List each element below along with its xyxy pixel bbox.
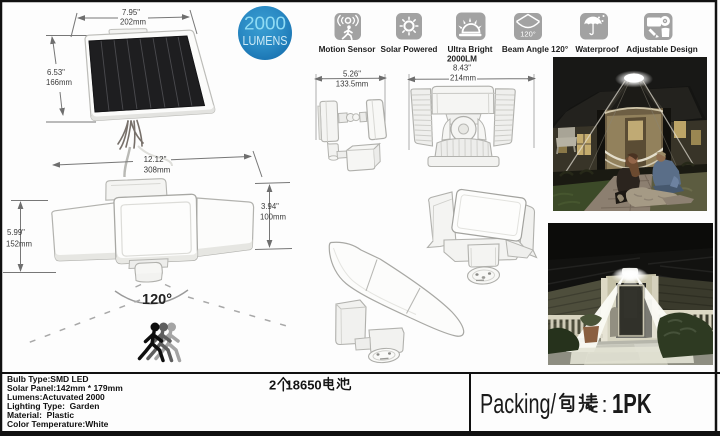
svg-text:152mm: 152mm <box>6 240 32 249</box>
svg-text:18650: 18650 <box>286 378 322 393</box>
svg-text:2000: 2000 <box>244 13 286 34</box>
svg-text:3.94": 3.94" <box>261 202 279 211</box>
svg-text:8.43": 8.43" <box>453 64 471 73</box>
svg-text:133.5mm: 133.5mm <box>336 80 369 89</box>
svg-text:5.99": 5.99" <box>7 228 25 237</box>
svg-text:5.26": 5.26" <box>343 70 361 79</box>
svg-text:Beam Angle 120°: Beam Angle 120° <box>502 45 568 54</box>
svg-text:1PK: 1PK <box>612 388 652 419</box>
svg-text:166mm: 166mm <box>46 78 72 87</box>
svg-text:120°: 120° <box>142 292 172 308</box>
svg-text:Motion Sensor: Motion Sensor <box>319 45 377 54</box>
svg-text:2: 2 <box>269 378 276 393</box>
svg-text:Solar Powered: Solar Powered <box>381 45 438 54</box>
svg-text:Adjustable Design: Adjustable Design <box>626 45 697 54</box>
svg-text:100mm: 100mm <box>260 213 286 222</box>
svg-text:Waterproof: Waterproof <box>575 45 619 54</box>
svg-text:308mm: 308mm <box>144 166 171 175</box>
svg-text:Ultra Bright: Ultra Bright <box>447 45 492 54</box>
svg-text:7.95": 7.95" <box>122 8 140 17</box>
svg-text:Packing/: Packing/ <box>480 388 556 419</box>
svg-text:Color Temperature:White: Color Temperature:White <box>7 419 109 429</box>
svg-text:214mm: 214mm <box>450 74 476 83</box>
svg-text:LUMENS: LUMENS <box>243 34 288 48</box>
svg-text:12.12": 12.12" <box>144 155 167 164</box>
svg-text:6.53": 6.53" <box>47 68 65 77</box>
svg-text:202mm: 202mm <box>120 18 146 27</box>
svg-text::: : <box>602 392 608 417</box>
svg-text:120°: 120° <box>520 30 536 39</box>
svg-text:2000LM: 2000LM <box>447 55 477 64</box>
